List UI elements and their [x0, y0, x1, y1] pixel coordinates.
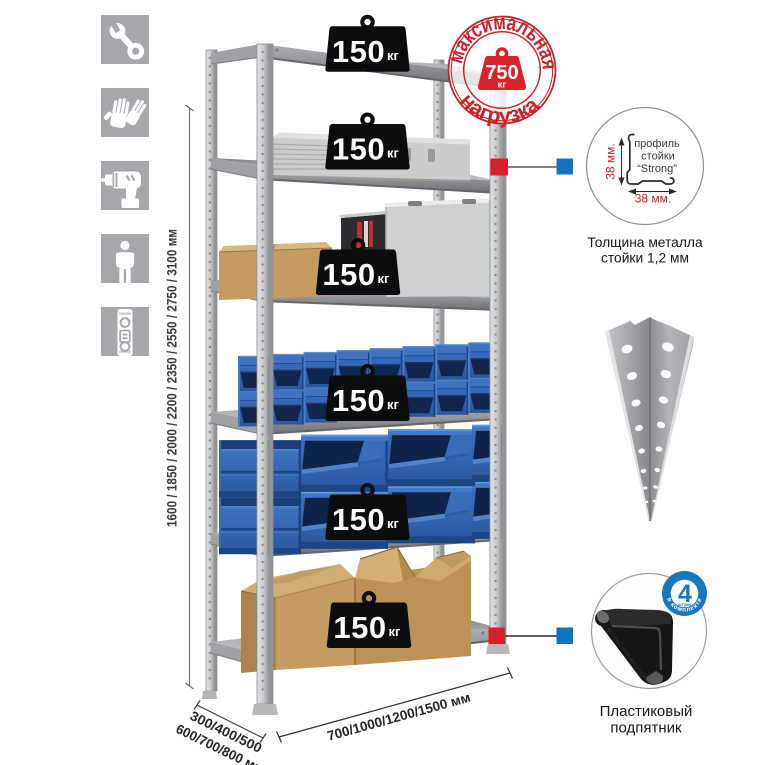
svg-text:Толщина металла: Толщина металла	[587, 235, 703, 250]
svg-text:150: 150	[332, 502, 385, 537]
svg-text:Пластиковый: Пластиковый	[600, 703, 693, 720]
svg-text:150: 150	[332, 383, 385, 418]
svg-text:150: 150	[332, 132, 385, 167]
svg-text:кг: кг	[498, 80, 507, 91]
svg-text:38 мм.: 38 мм.	[635, 192, 672, 206]
svg-text:кг: кг	[378, 271, 391, 286]
svg-text:профиль: профиль	[634, 138, 680, 150]
svg-text:кг: кг	[387, 516, 400, 531]
svg-text:“Strong”: “Strong”	[637, 163, 677, 175]
svg-text:стойки 1,2 мм: стойки 1,2 мм	[601, 251, 689, 266]
svg-text:150: 150	[332, 34, 385, 69]
svg-text:кг: кг	[387, 397, 400, 412]
svg-text:кг: кг	[387, 146, 400, 161]
svg-text:кг: кг	[389, 624, 402, 639]
svg-text:150: 150	[322, 257, 375, 292]
svg-text:150: 150	[333, 610, 386, 645]
svg-text:подпятник: подпятник	[610, 720, 682, 737]
svg-text:1600 / 1850 / 2000 / 2200 / 23: 1600 / 1850 / 2000 / 2200 / 2350 / 2550 …	[164, 229, 180, 527]
svg-text:38 мм.: 38 мм.	[604, 143, 618, 180]
svg-text:кг: кг	[387, 48, 400, 63]
svg-text:стойки: стойки	[641, 151, 675, 163]
